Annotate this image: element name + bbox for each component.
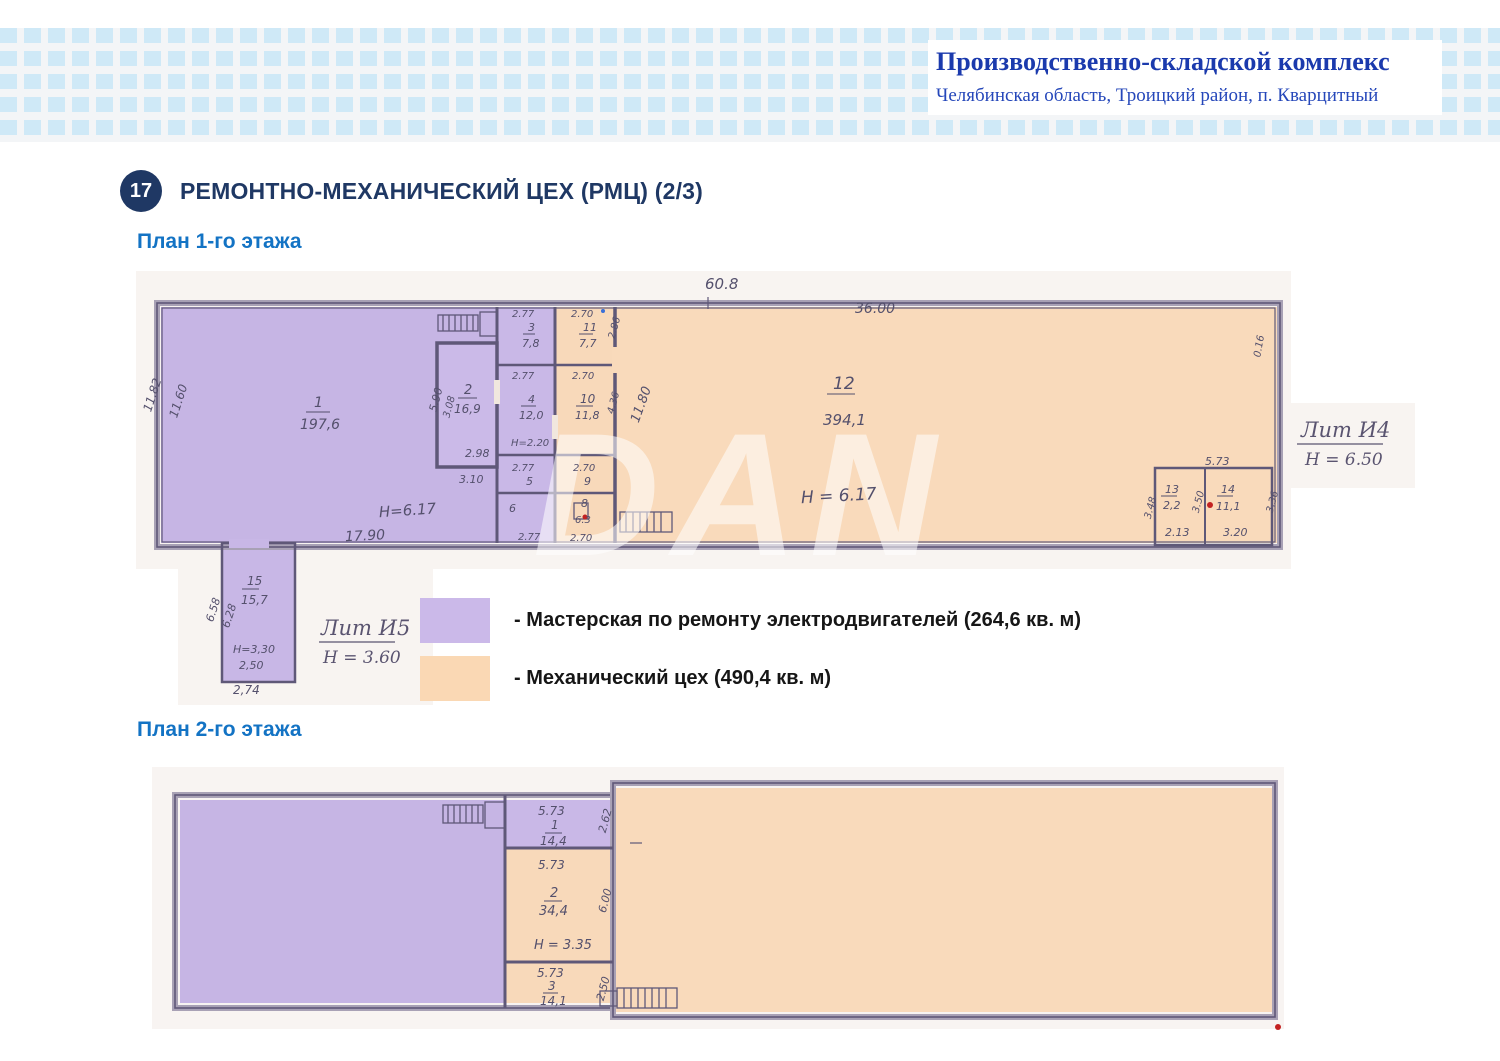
room3-area: 7,8 — [522, 337, 540, 350]
room14-num: 14 — [1221, 483, 1235, 496]
complex-location: Челябинская область, Троицкий район, п. … — [936, 85, 1442, 107]
section-number-badge: 17 — [120, 170, 162, 212]
room11-num: 11 — [583, 321, 597, 334]
room4-num: 4 — [528, 393, 535, 406]
p2-room1-area: 14,4 — [540, 834, 567, 848]
plan2-heading: План 2-го этажа — [137, 718, 302, 742]
room15-area: 15,7 — [241, 593, 268, 607]
room14-dim-bottom: 3.20 — [1223, 526, 1248, 539]
room10-dim-top: 2.70 — [572, 371, 594, 382]
room9-num: 9 — [584, 475, 591, 488]
room4-area: 12,0 — [519, 409, 544, 422]
section-title-row: 17 РЕМОНТНО-МЕХАНИЧЕСКИЙ ЦЕХ (РМЦ) (2/3) — [120, 170, 703, 212]
room11-area: 7,7 — [579, 337, 597, 350]
p1-dim-bottom: 17.90 — [345, 527, 386, 545]
room14-dim-top: 5.73 — [1205, 455, 1230, 468]
room13-area: 2,2 — [1163, 499, 1181, 512]
room15-dim-bottom: 2,74 — [233, 683, 260, 697]
lit-i4-height: H = 6.50 — [1304, 450, 1383, 470]
p2-left-hall-fill — [180, 800, 505, 1003]
legend-item-workshop: - Мастерская по ремонту электродвигателе… — [420, 598, 1081, 643]
p2-room1-dim-top: 5.73 — [538, 804, 565, 818]
section-title: РЕМОНТНО-МЕХАНИЧЕСКИЙ ЦЕХ (РМЦ) (2/3) — [180, 178, 703, 205]
p1-dim-top-total: 60.8 — [705, 275, 738, 293]
p2-room2-num: 2 — [550, 886, 558, 901]
p2-room3-area: 14,1 — [540, 994, 567, 1008]
room6-dim-bottom: 2.77 — [518, 532, 541, 543]
p2-room3-num: 3 — [548, 979, 556, 993]
room2-num: 2 — [464, 383, 472, 398]
room2-dim-bottom-b: 3.10 — [459, 473, 484, 486]
room2-area: 16,9 — [454, 402, 481, 416]
room6-num: 6 — [509, 502, 516, 515]
legend-label-mech-shop: - Механический цех (490,4 кв. м) — [514, 667, 831, 690]
room12-height: H = 6.17 — [800, 484, 877, 508]
room4-dim-top: 2.77 — [512, 371, 535, 382]
p2-room1-num: 1 — [551, 818, 559, 832]
lit-i5-label: Лит И5 — [320, 616, 410, 640]
p2-room2-dim-top: 5.73 — [538, 858, 565, 872]
room10-num: 10 — [580, 392, 596, 406]
room15-dim-inner: 2,50 — [239, 659, 264, 672]
room13-dim-bottom: 2.13 — [1165, 526, 1190, 539]
room12-num: 12 — [833, 374, 855, 394]
room9-dim-top: 2.70 — [573, 463, 595, 474]
room8-dim-bottom: 2.70 — [570, 533, 592, 544]
header-text-block: Производственно-складской комплекс Челяб… — [928, 40, 1442, 115]
plan1-heading: План 1-го этажа — [137, 230, 302, 254]
room8-num: 8 — [581, 497, 588, 510]
plan2-drawing: 5.73 1 14,4 2.62 5.73 2 34,4 H = 3.35 6.… — [150, 755, 1290, 1045]
room5-num: 5 — [526, 475, 533, 488]
legend-swatch-purple — [420, 598, 490, 643]
room10-area: 11,8 — [575, 409, 600, 422]
room1-num: 1 — [314, 395, 323, 411]
room11-dim-top: 2.70 — [571, 309, 593, 320]
legend-label-workshop: - Мастерская по ремонту электродвигателе… — [514, 609, 1081, 632]
room15-num: 15 — [247, 574, 262, 588]
legend: - Мастерская по ремонту электродвигателе… — [420, 598, 1081, 714]
p2-room3-dim-top: 5.73 — [537, 966, 564, 980]
room4-height: H=2.20 — [511, 438, 549, 449]
room8-area: 6.3 — [575, 515, 591, 526]
complex-title: Производственно-складской комплекс — [936, 46, 1442, 79]
page: Производственно-складской комплекс Челяб… — [0, 0, 1500, 1061]
p2-room2-height: H = 3.35 — [534, 938, 592, 953]
room15-height: H=3,30 — [233, 643, 275, 656]
room3-dim-top: 2.77 — [512, 309, 535, 320]
room5-dim-top: 2.77 — [512, 463, 535, 474]
lit-i4-label: Лит И4 — [1300, 418, 1390, 442]
p2-right-hall-fill — [616, 788, 1272, 1012]
room14-area: 11,1 — [1216, 500, 1241, 513]
legend-swatch-orange — [420, 656, 490, 701]
p1-dim-top-right: 36.00 — [855, 301, 895, 317]
room2-dim-bottom-a: 2.98 — [465, 447, 490, 460]
room13-num: 13 — [1165, 483, 1179, 496]
room1-area: 197,6 — [300, 417, 340, 433]
p2-room2-area: 34,4 — [539, 904, 568, 919]
watermark: DAN — [533, 398, 948, 593]
plan2-room-fills — [180, 788, 1272, 1012]
room12-area: 394,1 — [823, 411, 866, 429]
lit-i5-height: H = 3.60 — [322, 648, 401, 668]
room3-num: 3 — [528, 321, 535, 334]
legend-item-mech-shop: - Механический цех (490,4 кв. м) — [420, 656, 1081, 701]
